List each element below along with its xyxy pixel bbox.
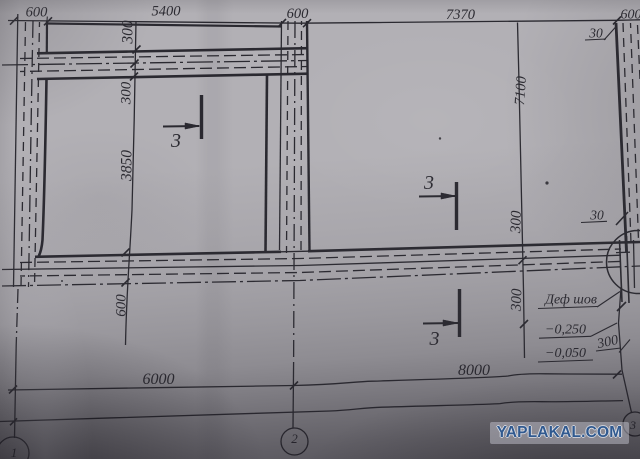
svg-text:300: 300 — [595, 333, 620, 352]
svg-text:7370: 7370 — [446, 7, 476, 23]
svg-text:3850: 3850 — [119, 150, 136, 182]
svg-text:600: 600 — [287, 6, 310, 22]
svg-text:30: 30 — [588, 26, 603, 41]
svg-text:8000: 8000 — [458, 362, 490, 379]
svg-text:3: 3 — [629, 418, 636, 432]
svg-text:−0,050: −0,050 — [545, 346, 586, 361]
svg-text:300: 300 — [120, 20, 137, 45]
svg-text:7100: 7100 — [512, 75, 530, 106]
svg-text:1: 1 — [11, 445, 18, 459]
svg-text:2: 2 — [291, 431, 298, 446]
svg-text:3: 3 — [423, 172, 434, 194]
svg-text:−0,250: −0,250 — [545, 323, 586, 338]
svg-text:30: 30 — [589, 208, 604, 223]
svg-text:Деф шов: Деф шов — [543, 293, 597, 308]
svg-text:5400: 5400 — [152, 4, 182, 20]
svg-text:600: 600 — [621, 8, 640, 23]
svg-text:300: 300 — [508, 210, 525, 235]
svg-text:300: 300 — [119, 81, 135, 105]
svg-text:6000: 6000 — [143, 371, 175, 388]
svg-text:3: 3 — [429, 328, 440, 350]
svg-text:600: 600 — [26, 5, 49, 21]
svg-text:3: 3 — [170, 130, 181, 152]
svg-text:300: 300 — [509, 288, 526, 313]
svg-text:600: 600 — [114, 294, 130, 317]
